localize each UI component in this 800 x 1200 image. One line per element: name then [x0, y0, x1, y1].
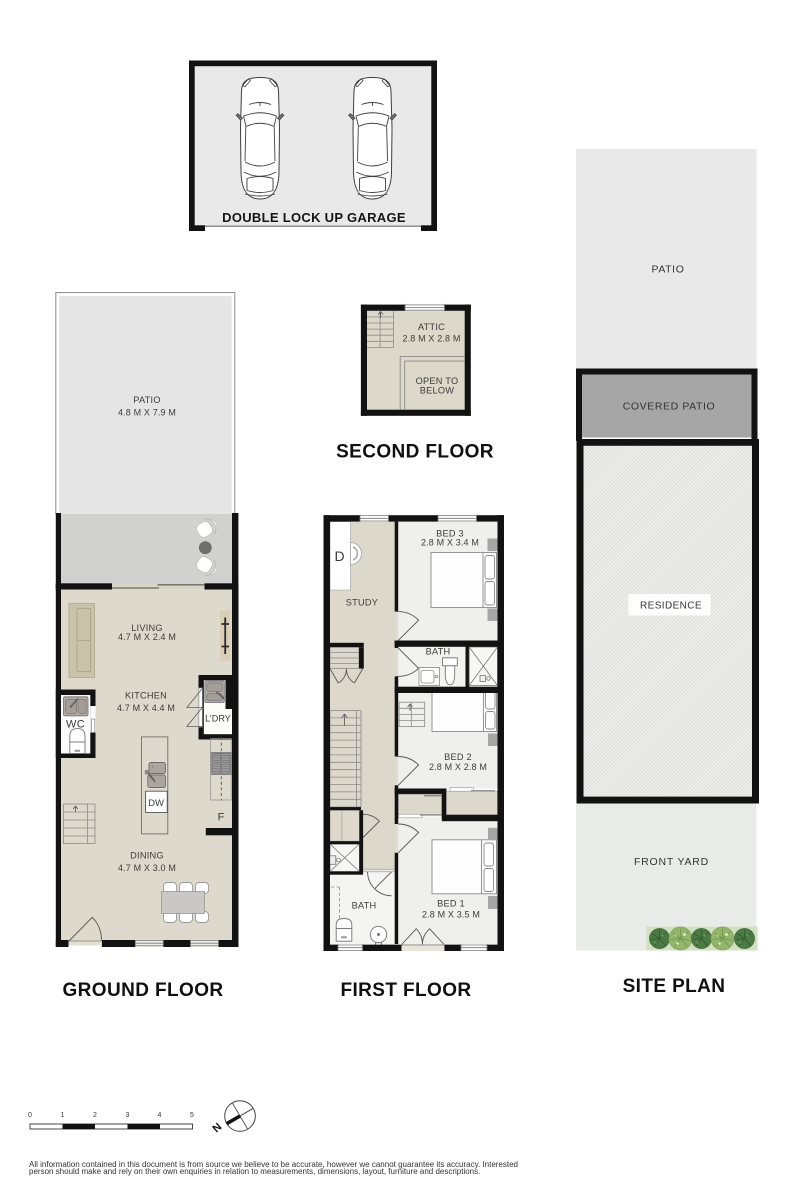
svg-text:PATIO: PATIO [133, 395, 160, 405]
svg-text:FRONT YARD: FRONT YARD [634, 856, 709, 868]
svg-text:2.8 M X 2.8 M: 2.8 M X 2.8 M [403, 334, 461, 344]
svg-text:BED 1: BED 1 [437, 899, 465, 909]
svg-text:BATH: BATH [352, 901, 377, 911]
svg-text:FIRST FLOOR: FIRST FLOOR [340, 980, 471, 1001]
svg-text:person should make and rely on: person should make and rely on their own… [29, 1167, 480, 1176]
svg-text:4.7 M X 3.0 M: 4.7 M X 3.0 M [118, 863, 176, 873]
svg-text:5: 5 [190, 1112, 194, 1119]
svg-text:2.8 M X 3.5 M: 2.8 M X 3.5 M [422, 910, 480, 920]
svg-text:2.8 M X 3.4 M: 2.8 M X 3.4 M [421, 538, 479, 548]
svg-text:4: 4 [158, 1112, 162, 1119]
svg-text:RESIDENCE: RESIDENCE [640, 601, 702, 612]
svg-text:ATTIC: ATTIC [418, 322, 445, 332]
svg-text:DOUBLE LOCK UP GARAGE: DOUBLE LOCK UP GARAGE [222, 210, 406, 225]
svg-text:PATIO: PATIO [652, 264, 685, 276]
svg-text:4.7 M X 4.4 M: 4.7 M X 4.4 M [117, 703, 175, 713]
svg-text:DW: DW [148, 798, 164, 809]
svg-text:1: 1 [61, 1112, 65, 1119]
svg-text:0: 0 [28, 1112, 32, 1119]
svg-text:STUDY: STUDY [346, 598, 378, 608]
svg-text:SITE PLAN: SITE PLAN [623, 976, 726, 997]
svg-text:4.8 M X 7.9 M: 4.8 M X 7.9 M [118, 408, 176, 418]
svg-text:L’DRY: L’DRY [205, 714, 231, 724]
svg-text:2.8 M X 2.8 M: 2.8 M X 2.8 M [429, 762, 487, 772]
svg-text:GROUND FLOOR: GROUND FLOOR [62, 980, 223, 1001]
svg-text:3: 3 [126, 1112, 130, 1119]
svg-text:F: F [218, 812, 225, 824]
svg-text:D: D [335, 548, 345, 564]
svg-text:KITCHEN: KITCHEN [125, 691, 167, 701]
svg-text:BED 2: BED 2 [444, 752, 472, 762]
svg-text:4.7 M X 2.4 M: 4.7 M X 2.4 M [118, 632, 176, 642]
svg-text:BELOW: BELOW [420, 386, 455, 396]
svg-text:SECOND FLOOR: SECOND FLOOR [336, 442, 494, 463]
svg-text:COVERED PATIO: COVERED PATIO [623, 401, 716, 413]
svg-text:BATH: BATH [426, 647, 451, 657]
svg-text:OPEN TO: OPEN TO [416, 376, 459, 386]
svg-text:N: N [210, 1121, 224, 1135]
svg-text:2: 2 [93, 1112, 97, 1119]
svg-text:DINING: DINING [130, 851, 164, 861]
